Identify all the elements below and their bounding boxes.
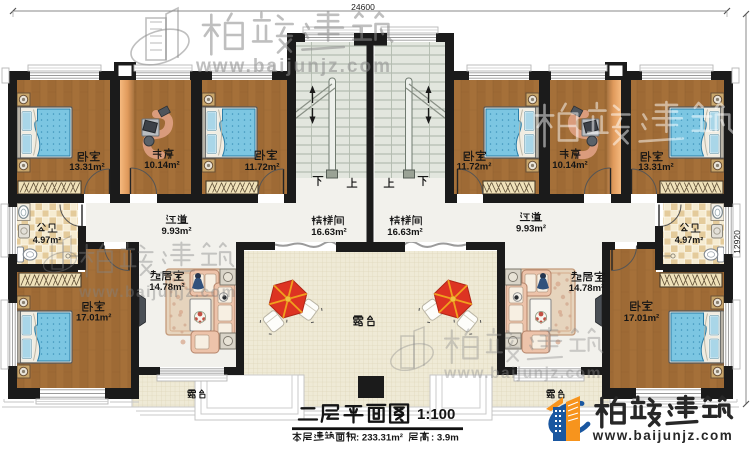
svg-text:: 233.31m²: : 233.31m² — [356, 433, 403, 444]
svg-text:13.31m²: 13.31m² — [69, 162, 104, 173]
svg-text:www.baijunjz.com: www.baijunjz.com — [78, 284, 237, 301]
svg-text:13.31m²: 13.31m² — [638, 162, 673, 173]
svg-text:12920: 12920 — [732, 230, 742, 254]
svg-text:24600: 24600 — [351, 2, 375, 12]
svg-text:10.14m²: 10.14m² — [144, 160, 179, 171]
svg-text:www.baijunjz.com: www.baijunjz.com — [592, 428, 734, 443]
svg-text:10.14m²: 10.14m² — [552, 160, 587, 171]
svg-text:11.72m²: 11.72m² — [457, 161, 492, 172]
svg-text:9.93m²: 9.93m² — [161, 226, 191, 237]
svg-text:11.72m²: 11.72m² — [245, 162, 280, 173]
svg-text:4.97m²: 4.97m² — [675, 235, 704, 245]
svg-text:17.01m²: 17.01m² — [624, 313, 659, 324]
svg-text:1:100: 1:100 — [417, 406, 455, 423]
svg-text:www.baijunjz.com: www.baijunjz.com — [443, 365, 602, 382]
svg-text:14.78m²: 14.78m² — [569, 283, 604, 294]
svg-text:9.93m²: 9.93m² — [516, 223, 546, 234]
svg-text:4.97m²: 4.97m² — [33, 235, 62, 245]
svg-text:16.63m²: 16.63m² — [311, 227, 346, 238]
svg-text:www.baijunjz.com: www.baijunjz.com — [195, 56, 392, 77]
svg-text:16.63m²: 16.63m² — [387, 227, 422, 238]
svg-text:: 3.9m: : 3.9m — [431, 433, 459, 444]
svg-text:17.01m²: 17.01m² — [76, 312, 111, 323]
